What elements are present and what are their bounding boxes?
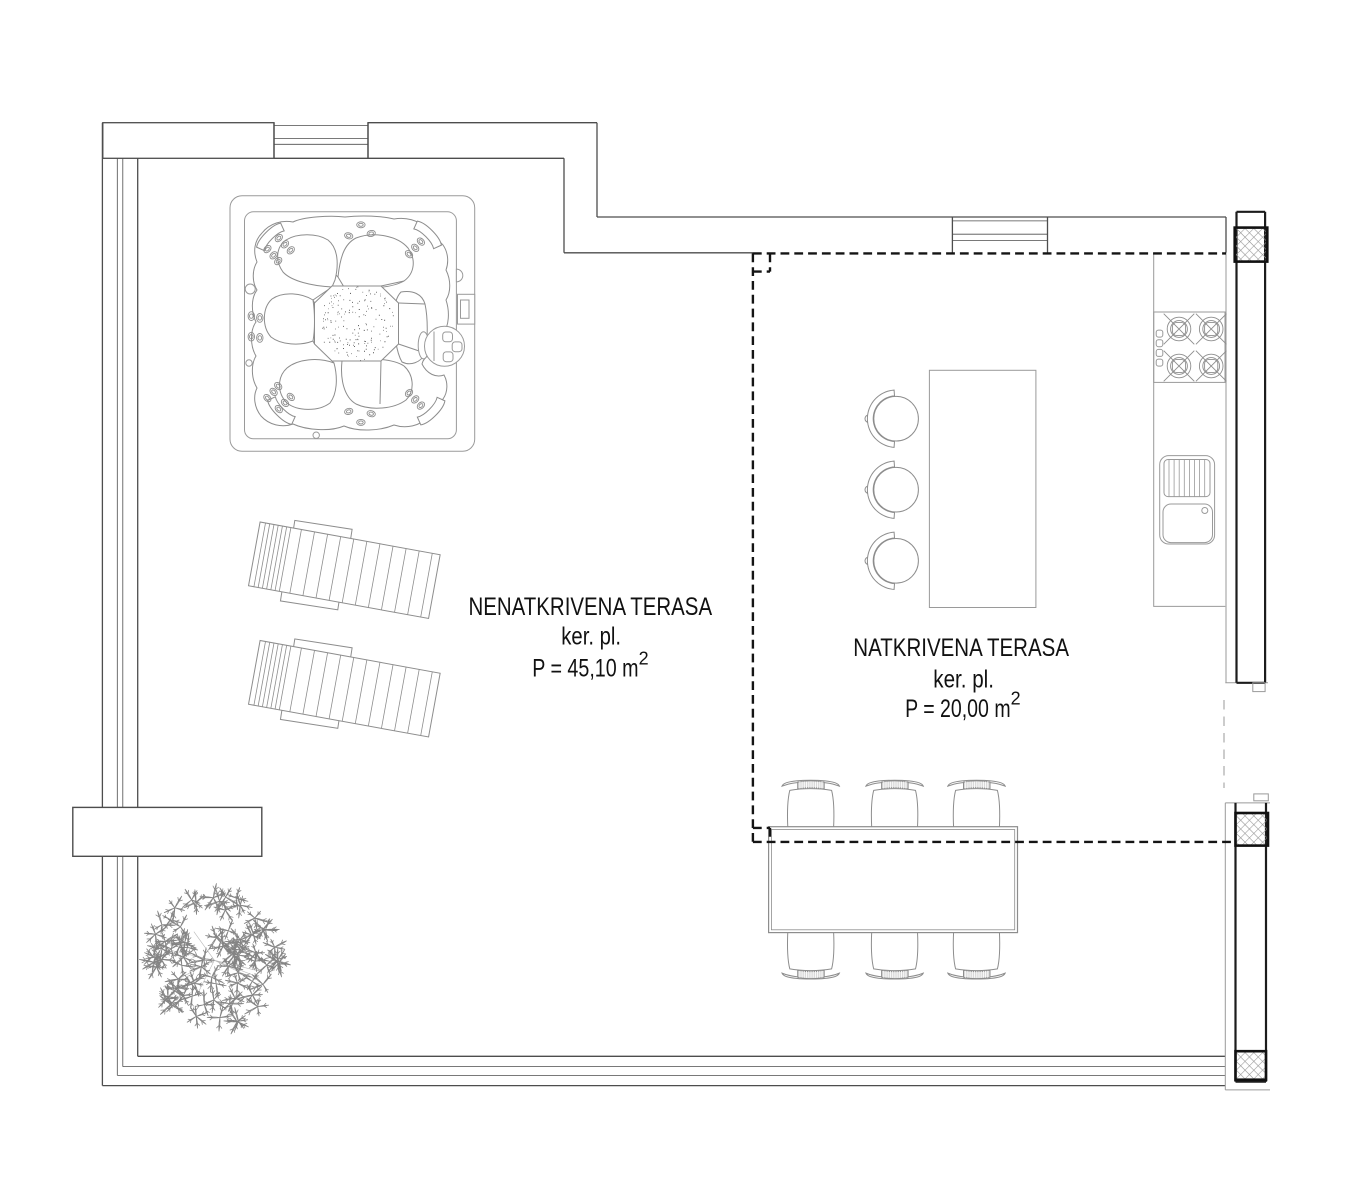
svg-text:ker. pl.: ker. pl.: [561, 623, 621, 651]
svg-text:NENATKRIVENA TERASA: NENATKRIVENA TERASA: [469, 593, 713, 621]
svg-text:P = 45,10 m: P = 45,10 m: [532, 655, 638, 683]
svg-text:ker. pl.: ker. pl.: [933, 665, 994, 693]
svg-text:2: 2: [1011, 689, 1021, 709]
svg-text:2: 2: [639, 649, 649, 669]
svg-text:P = 20,00 m: P = 20,00 m: [905, 695, 1011, 723]
svg-text:NATKRIVENA TERASA: NATKRIVENA TERASA: [853, 634, 1069, 662]
